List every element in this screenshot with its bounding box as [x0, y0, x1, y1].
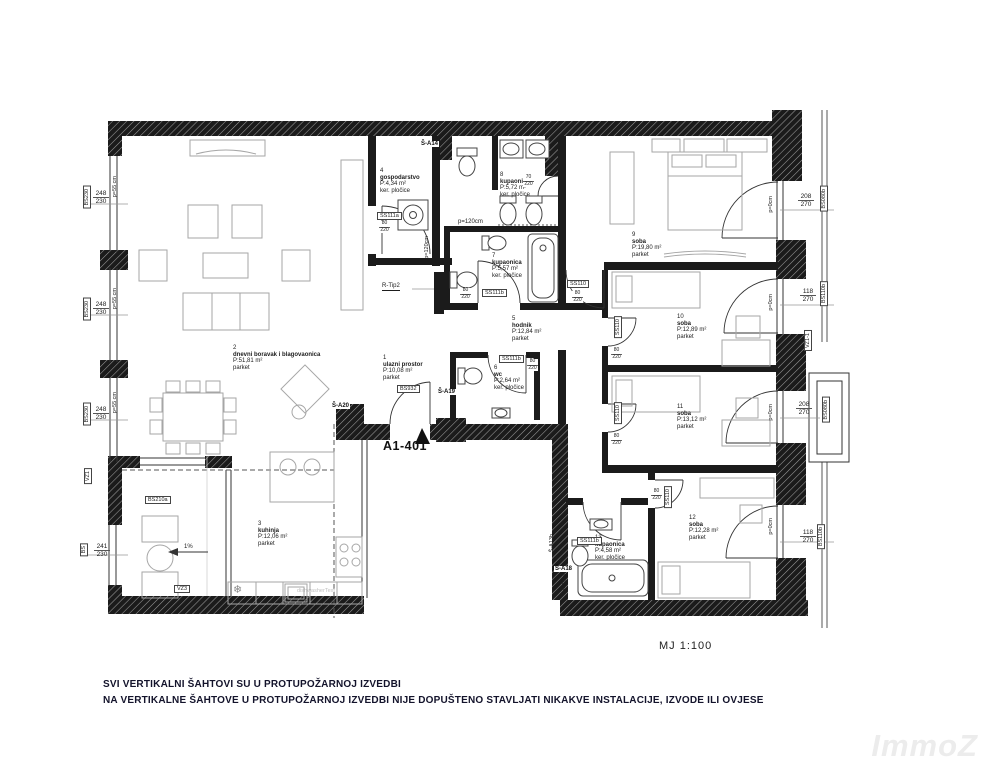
door-code-ss110: SS110: [664, 486, 672, 508]
balcony-dim: 208270: [796, 401, 812, 416]
shaft-sa20: [336, 404, 364, 440]
window-code: BS230: [83, 186, 91, 209]
window-dim: 241230: [94, 543, 110, 558]
watermark: ImmoZ: [871, 728, 978, 764]
door-dim: 80220: [572, 291, 583, 303]
parapet-label: p=55 cm: [112, 288, 118, 309]
door-dim: 80220: [611, 434, 622, 446]
shaft-label-a13b: Š-A13b: [549, 534, 555, 552]
balcony-code: BS080b: [820, 186, 828, 212]
note-line-2: NA VERTIKALNE ŠAHTOVE U PROTUPOŽARNOJ IZ…: [103, 695, 764, 706]
window-dim: 248230: [93, 301, 109, 316]
parapet-0: p=0cm: [768, 404, 774, 421]
door-dim: 80220: [460, 288, 471, 300]
double-bed: [668, 152, 742, 230]
note-line-1: SVI VERTIKALNI ŠAHTOVI SU U PROTUPOŽARNO…: [103, 679, 401, 690]
parapet-120-v: p=120cm: [424, 236, 430, 259]
balcony-dim: 118270: [800, 529, 816, 544]
door-code-ss111a: SS111a: [377, 212, 402, 220]
bed: [612, 272, 700, 308]
room-label-hodnik: 5hodnik P:12,84 m²parket: [512, 316, 541, 342]
dishwasher-label: dishwasherText: [297, 588, 335, 594]
balcony-code: BS080b: [822, 397, 830, 423]
vz1-1-code: VZ1-1: [804, 330, 812, 351]
balcony-dim: 208270: [798, 193, 814, 208]
parapet-120-h: p=120cm: [458, 219, 483, 226]
dining-table: [163, 393, 223, 441]
window-code-bs: BS: [80, 543, 88, 556]
door-code-ss111b: SS111b: [499, 355, 524, 363]
room-label-soba-11: 11soba P:13,12 m²parket: [677, 404, 706, 430]
door-dim: 80220: [611, 348, 622, 360]
toilet: [488, 236, 506, 250]
parapet-60: p=60cm: [562, 572, 568, 592]
sink: [594, 520, 608, 528]
door-code-ss111b: SS111b: [577, 537, 602, 545]
parapet-label: p=55 cm: [112, 392, 118, 413]
balcony-railings: [809, 110, 849, 628]
room-label-wc: 6wc P:2,64 m²ker. pločice: [494, 365, 524, 391]
vz1-code: VZ1: [84, 468, 92, 484]
entry-door-code: BS932: [397, 385, 420, 393]
shaft-label-a19: Š-A19: [437, 389, 456, 395]
bed: [658, 562, 750, 598]
bidet: [526, 203, 542, 225]
slope-label: 1%: [184, 544, 193, 551]
radiator: [434, 272, 444, 314]
floorplan-page: 1ulazni prostor P:10,08 m²parket 2dnevni…: [0, 0, 994, 766]
room-label-dnevni-boravak: 2dnevni boravak i blagovaonica P:51,81 m…: [233, 345, 320, 371]
room-label-kupaonica-7: 7kupaonica P:5,57 m²ker. pločice: [492, 253, 522, 279]
toilet: [459, 156, 475, 176]
door-code-ss110: SS110: [614, 402, 622, 424]
window-dim: 248230: [93, 406, 109, 421]
windows: [109, 156, 783, 598]
door-dim: 80220: [379, 221, 390, 233]
furniture-living-room: [139, 140, 363, 454]
shaft-label-a14: Š-A14: [420, 141, 439, 147]
terrace-door-code: BS210a: [145, 496, 171, 504]
room-label-gospodarstvo: 4gospodarstvo P:4,34 m²ker. pločice: [380, 168, 420, 194]
toilet: [457, 272, 477, 288]
furniture-kitchen: [228, 452, 362, 604]
sink: [503, 143, 519, 155]
balcony-code: BS110b: [820, 281, 828, 306]
window-code: BS230: [83, 403, 91, 426]
balcony-code: BS110b: [817, 524, 825, 549]
parapet-0: p=0cm: [768, 196, 774, 213]
door-dim: 80220: [527, 359, 538, 371]
scale-label: MJ 1:100: [659, 640, 712, 652]
window-dim: 248230: [93, 190, 109, 205]
fridge-icon: ❄: [233, 583, 242, 596]
toilet: [572, 546, 588, 566]
room-label-ulazni-prostor: 1ulazni prostor P:10,08 m²parket: [383, 355, 423, 381]
vz3-code: VZ3: [174, 585, 190, 593]
door-code-ss110: SS110: [614, 316, 622, 338]
shaft-label-a20: Š-A20: [331, 403, 350, 409]
parapet-label: p=55 cm: [112, 176, 118, 197]
toilet: [500, 203, 516, 225]
apartment-id: A1-401: [383, 439, 427, 453]
room-label-soba-10: 10soba P:12,89 m²parket: [677, 314, 706, 340]
toilet: [464, 368, 482, 384]
door-code-ss111b: SS111b: [482, 289, 507, 297]
room-label-soba-9: 9soba P:19,80 m²parket: [632, 232, 661, 258]
door-dim-narrow: 70220: [523, 175, 534, 187]
door-code-ss110: SS110: [567, 280, 589, 288]
balcony-dim: 118270: [800, 288, 816, 303]
sink: [495, 409, 507, 417]
parapet-0: p=0cm: [768, 518, 774, 535]
window-code: BS230: [83, 298, 91, 321]
radiator-code: R-Tip2: [382, 283, 400, 291]
sink: [529, 143, 545, 155]
shaft-sa19: [436, 418, 466, 442]
door-dim: 80220: [651, 489, 662, 501]
parapet-0: p=0cm: [768, 294, 774, 311]
room-label-kuhinja: 3kuhinja P:12,06 m²parket: [258, 521, 287, 547]
room-label-soba-12: 12soba P:12,28 m²parket: [689, 515, 718, 541]
